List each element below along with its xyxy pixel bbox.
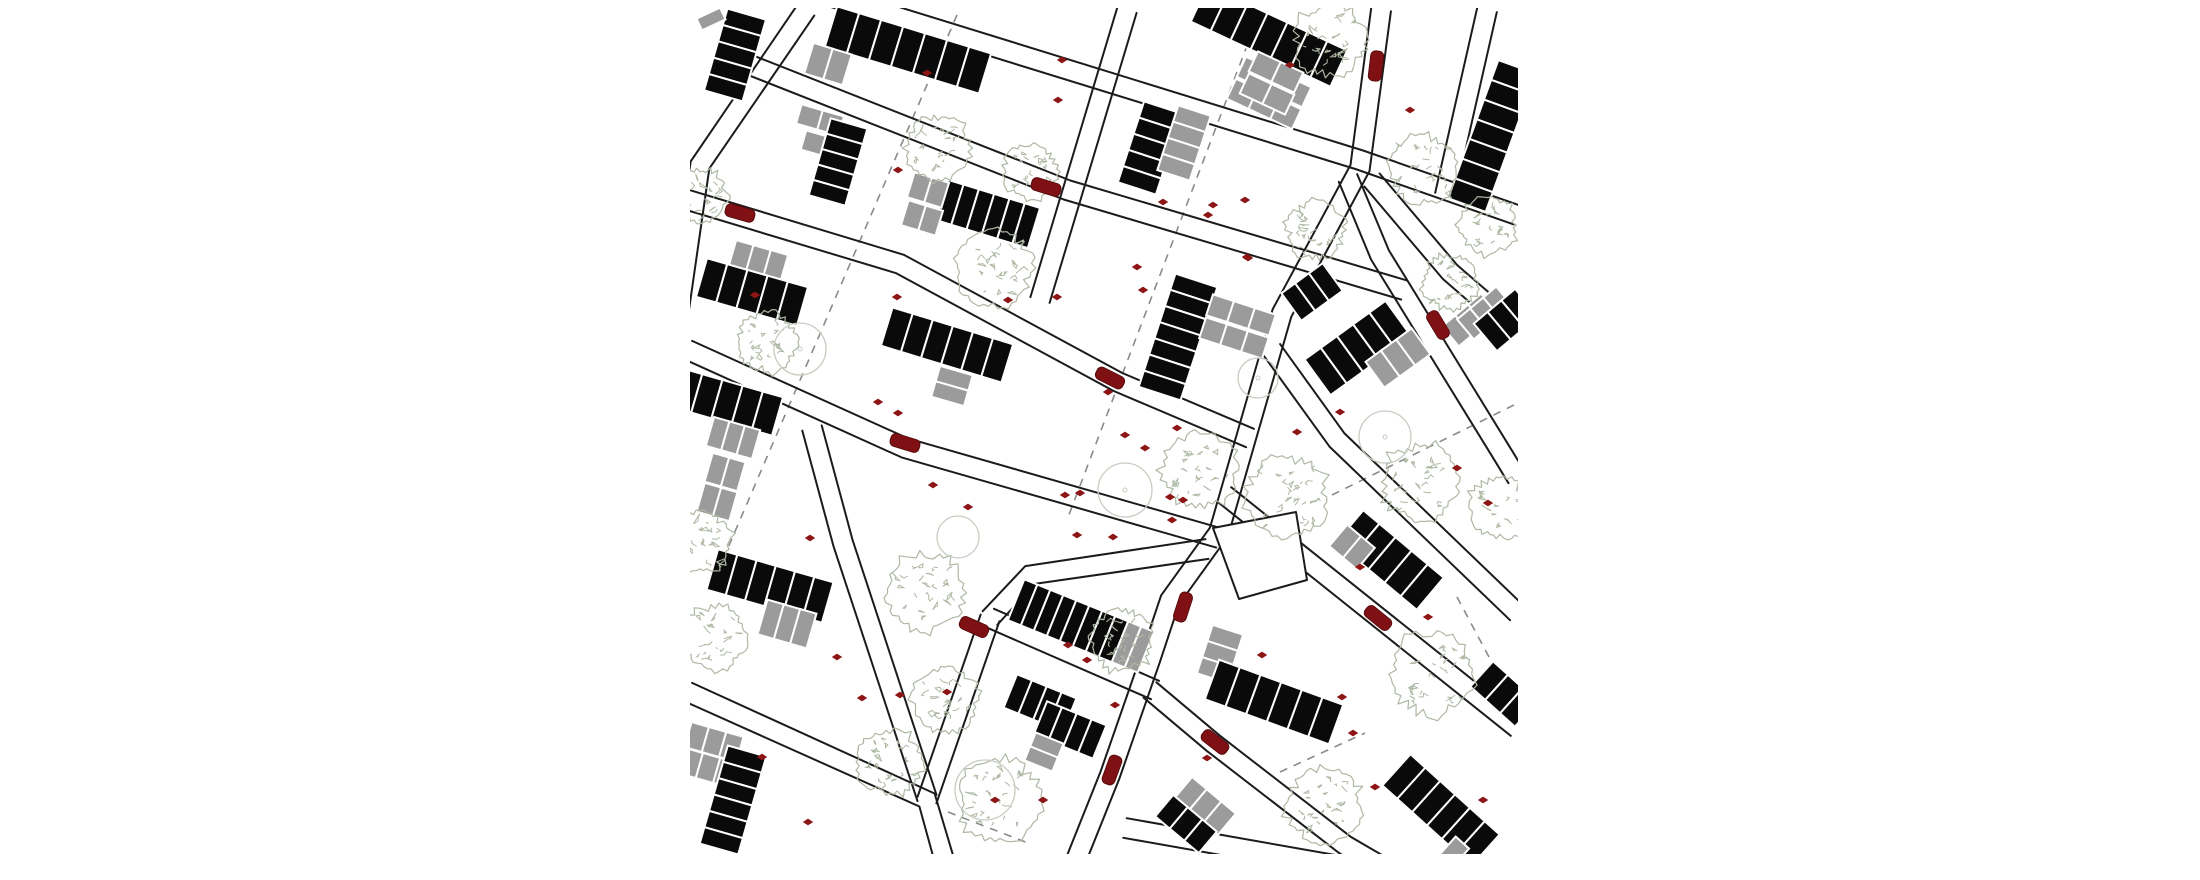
leaf-speck [1302, 516, 1306, 520]
leaf-speck [943, 701, 948, 707]
leaf-speck [987, 817, 990, 820]
tree-trunk-dot [1123, 488, 1127, 492]
leaf-speck [699, 644, 706, 646]
leaf-speck [929, 598, 933, 601]
leaf-speck [938, 155, 942, 157]
tree-circle [955, 760, 1015, 820]
leaf-speck [715, 190, 720, 194]
leaf-speck [885, 775, 892, 779]
leaf-speck [1493, 207, 1496, 214]
leaf-speck [1302, 235, 1305, 238]
pedestrian-marker [1158, 199, 1168, 206]
leaf-speck [1518, 495, 1523, 499]
leaf-speck [958, 698, 961, 702]
building-unit [696, 8, 725, 31]
leaf-speck [1177, 494, 1179, 499]
tree-outline [1468, 476, 1536, 540]
building-strip [1448, 60, 1536, 212]
leaf-speck [748, 330, 750, 332]
leaf-speck [777, 348, 783, 353]
leaf-speck [1297, 231, 1300, 236]
plan-content [666, 0, 1538, 880]
leaf-speck [923, 681, 925, 684]
leaf-speck [1415, 483, 1420, 489]
pedestrian-marker [1452, 465, 1462, 472]
tree-outline [1281, 765, 1363, 846]
leaf-speck [1421, 482, 1427, 486]
leaf-speck [1305, 481, 1312, 486]
leaf-speck [1204, 446, 1208, 449]
leaf-speck [1203, 486, 1210, 491]
leaf-speck [900, 772, 903, 777]
leaf-speck [1283, 479, 1288, 485]
leaf-speck [1318, 243, 1323, 246]
pedestrian-marker [1208, 202, 1218, 209]
leaf-speck [706, 522, 708, 523]
tree-circle-outline [955, 760, 1015, 820]
leaf-speck [1336, 14, 1344, 17]
leaf-speck [977, 264, 985, 266]
leaf-speck [712, 537, 720, 539]
car-body [1362, 604, 1393, 633]
tree-circle [1359, 411, 1411, 463]
leaf-speck [1196, 475, 1200, 480]
pedestrian-marker [1478, 797, 1488, 804]
pedestrian-marker [1405, 107, 1415, 114]
pedestrian-marker [1292, 429, 1302, 436]
building-strip [1205, 660, 1343, 745]
leaf-speck [879, 778, 883, 783]
leaf-speck [1005, 782, 1010, 786]
leaf-speck [1014, 279, 1018, 282]
leaf-speck [1448, 695, 1456, 699]
leaf-speck [1003, 793, 1008, 796]
leaf-speck [875, 764, 878, 768]
leaf-speck [1300, 211, 1304, 218]
pedestrian-marker [1060, 492, 1070, 499]
tree-canopy [1281, 765, 1363, 846]
building-strip [809, 118, 868, 205]
pedestrian-marker [1423, 614, 1433, 621]
pedestrian-marker [857, 695, 867, 702]
tree-circle [937, 516, 979, 558]
leaf-speck [986, 258, 990, 263]
tree-trunk-dot [798, 347, 802, 351]
pedestrian-marker [1132, 264, 1142, 271]
leaf-speck [696, 615, 700, 620]
leaf-speck [918, 611, 925, 613]
leaf-speck [1309, 240, 1316, 241]
leaf-speck [1400, 502, 1408, 503]
leaf-speck [1304, 520, 1309, 526]
pedestrian-marker [990, 797, 1000, 804]
leaf-speck [757, 354, 763, 360]
leaf-speck [1435, 463, 1441, 464]
pedestrian-marker [1120, 432, 1130, 439]
leaf-speck [1408, 687, 1410, 689]
tree-trunk-dot [1256, 376, 1260, 380]
leaf-speck [1481, 505, 1490, 510]
leaf-speck [1207, 468, 1212, 470]
leaf-speck [1438, 505, 1442, 507]
leaf-speck [914, 160, 917, 163]
leaf-speck [716, 647, 717, 648]
leaf-speck [1394, 489, 1398, 492]
leaf-speck [980, 811, 984, 815]
leaf-speck [997, 243, 1001, 250]
leaf-speck [1302, 502, 1306, 505]
leaf-speck [950, 127, 958, 128]
leaf-speck [1426, 176, 1434, 181]
leaf-speck [1278, 505, 1282, 508]
leaf-speck [1398, 508, 1402, 510]
leaf-speck [1321, 810, 1324, 813]
leaf-speck [977, 255, 985, 260]
leaf-speck [951, 595, 955, 601]
leaf-speck [1515, 499, 1520, 501]
leaf-speck [1447, 266, 1454, 270]
leaf-speck [1299, 810, 1304, 815]
leaf-speck [1276, 474, 1281, 476]
leaf-speck [1331, 809, 1335, 812]
leaf-speck [965, 807, 974, 809]
leaf-speck [767, 355, 770, 358]
leaf-speck [1213, 450, 1218, 455]
leaf-speck [1333, 33, 1340, 38]
leaf-speck [947, 129, 955, 132]
leaf-speck [874, 740, 876, 745]
leaf-speck [1446, 699, 1454, 703]
leaf-speck [1323, 792, 1328, 794]
leaf-speck [1504, 233, 1509, 237]
pedestrian-marker [1052, 294, 1062, 301]
pedestrian-marker [1003, 297, 1013, 304]
leaf-speck [1453, 648, 1458, 651]
building-strip [825, 6, 991, 93]
leaf-speck [1016, 822, 1018, 826]
leaf-speck [979, 271, 983, 275]
leaf-speck [992, 822, 994, 825]
leaf-speck [1312, 817, 1318, 818]
leaf-speck [1300, 224, 1309, 225]
leaf-speck [696, 174, 699, 181]
leaf-speck [1003, 816, 1005, 820]
leaf-speck [892, 573, 899, 581]
leaf-speck [933, 602, 938, 610]
leaf-speck [1043, 164, 1046, 169]
leaf-speck [1304, 217, 1307, 221]
leaf-speck [953, 137, 955, 141]
leaf-speck [1181, 468, 1187, 471]
leaf-speck [735, 633, 742, 634]
leaf-speck [926, 573, 934, 575]
leaf-speck [1447, 274, 1452, 279]
building-strip [1470, 661, 1537, 726]
pedestrian-marker [1108, 534, 1118, 541]
building-strip [936, 180, 1040, 248]
pedestrian-marker [1172, 425, 1182, 432]
leaf-speck [1014, 155, 1017, 158]
leaf-speck [1337, 803, 1341, 806]
car [724, 203, 756, 224]
leaf-speck [1517, 518, 1528, 521]
leaf-speck [934, 567, 938, 568]
leaf-speck [912, 566, 917, 569]
leaf-speck [1414, 145, 1417, 150]
tree-canopy [959, 754, 1044, 842]
leaf-speck [1188, 491, 1189, 494]
tree-circle-outline [937, 516, 979, 558]
leaf-speck [1306, 797, 1310, 798]
leaf-speck [1016, 267, 1028, 274]
leaf-speck [922, 583, 930, 588]
leaf-speck [1519, 497, 1523, 506]
leaf-speck [898, 585, 904, 588]
leaf-speck [1302, 816, 1304, 819]
leaf-speck [679, 552, 684, 558]
leaf-speck [973, 802, 976, 803]
leaf-speck [1008, 291, 1017, 294]
leaf-speck [943, 160, 945, 162]
leaf-speck [1412, 701, 1415, 704]
leaf-speck [709, 207, 715, 211]
leaf-speck [691, 182, 695, 189]
leaf-speck [751, 346, 753, 350]
leaf-speck [720, 652, 732, 655]
leaf-speck [1475, 239, 1479, 241]
leaf-speck [689, 550, 693, 554]
building-strip [1008, 579, 1154, 672]
tree-outline [908, 666, 982, 734]
leaf-speck [1298, 246, 1302, 247]
tree-outline [1381, 441, 1461, 523]
tree-trunk-dot [1383, 435, 1387, 439]
building-strip [1382, 754, 1499, 866]
leaf-speck [1424, 492, 1432, 493]
street-island [1213, 512, 1307, 599]
leaf-speck [898, 748, 902, 749]
leaf-speck [986, 772, 989, 774]
tree-circle [774, 323, 826, 375]
leaf-speck [679, 537, 681, 540]
pedestrian-marker [1082, 657, 1092, 664]
leaf-speck [1474, 218, 1480, 223]
leaf-speck [1420, 691, 1422, 695]
leaf-speck [688, 547, 691, 551]
leaf-speck [1198, 451, 1203, 454]
leaf-speck [947, 567, 953, 571]
site-plan-svg [0, 0, 2200, 880]
leaf-speck [974, 775, 977, 779]
pedestrian-marker [1370, 784, 1380, 791]
car-body [724, 203, 756, 224]
leaf-speck [1491, 241, 1495, 244]
leaf-speck [692, 540, 697, 546]
leaf-speck [700, 612, 705, 615]
leaf-speck [1184, 451, 1188, 455]
leaf-speck [1440, 467, 1444, 471]
leaf-speck [709, 188, 711, 191]
leaf-speck [953, 708, 960, 711]
leaf-speck [1315, 498, 1321, 502]
leaf-speck [1437, 298, 1441, 300]
leaf-speck [1430, 458, 1433, 464]
leaf-speck [1317, 821, 1320, 824]
leaf-speck [713, 182, 717, 186]
car [1172, 591, 1194, 624]
leaf-speck [1025, 157, 1029, 160]
leaf-speck [1034, 155, 1040, 157]
leaf-speck [921, 616, 926, 620]
leaf-speck [1440, 667, 1447, 671]
leaf-speck [983, 777, 987, 781]
leaf-speck [750, 341, 753, 343]
leaf-speck [1425, 470, 1429, 473]
leaf-speck [1004, 272, 1006, 275]
leaf-speck [943, 600, 951, 605]
leaf-speck [903, 605, 907, 608]
leaf-speck [881, 738, 886, 740]
leaf-speck [1025, 175, 1027, 179]
leaf-speck [709, 543, 714, 545]
pedestrian-marker [1202, 755, 1212, 762]
tree-canopy [908, 666, 982, 734]
leaf-speck [1285, 497, 1292, 501]
leaf-speck [751, 356, 754, 360]
leaf-speck [1426, 166, 1431, 169]
leaf-speck [884, 743, 888, 748]
leaf-speck [1430, 147, 1432, 154]
leaf-speck [1437, 502, 1442, 505]
leaf-speck [1499, 225, 1503, 229]
tree-outline [884, 551, 967, 636]
leaf-speck [1445, 184, 1447, 188]
pedestrian-marker [1072, 532, 1082, 539]
leaf-speck [918, 564, 923, 568]
leaf-speck [944, 132, 949, 134]
leaf-speck [986, 791, 990, 797]
leaf-speck [1519, 512, 1525, 516]
leaf-speck [723, 630, 726, 633]
leaf-speck [720, 649, 724, 652]
leaf-speck [900, 575, 908, 578]
tree-circle [1098, 463, 1152, 517]
site-plan-canvas [0, 0, 2200, 880]
leaf-speck [1465, 285, 1472, 289]
leaf-speck [915, 129, 922, 138]
leaf-speck [1334, 17, 1341, 22]
street-edge-vertical-street-center [1030, 7, 1117, 297]
tree-circle-outline [774, 323, 826, 375]
pedestrian-marker [1335, 409, 1345, 416]
leaf-speck [682, 183, 684, 189]
leaf-speck [697, 654, 700, 657]
leaf-speck [945, 137, 950, 139]
leaf-speck [1298, 228, 1307, 232]
tree-canopy [1468, 476, 1536, 540]
leaf-speck [911, 773, 918, 776]
leaf-speck [926, 593, 929, 601]
pedestrian-marker [1167, 517, 1177, 524]
leaf-speck [1336, 808, 1342, 811]
leaf-speck [1317, 785, 1322, 788]
leaf-speck [1416, 165, 1420, 168]
leaf-speck [1312, 517, 1315, 526]
tree-circle-outline [1359, 411, 1411, 463]
leaf-speck [1424, 475, 1434, 479]
leaf-speck [898, 741, 900, 744]
pedestrian-marker [893, 410, 903, 417]
leaf-speck [866, 766, 871, 768]
car [1094, 365, 1127, 390]
leaf-speck [1289, 472, 1293, 475]
pedestrian-marker [1038, 797, 1048, 804]
leaf-speck [1494, 505, 1499, 506]
pedestrian-marker [873, 399, 883, 406]
leaf-speck [1352, 20, 1355, 22]
leaf-speck [711, 613, 716, 621]
leaf-speck [932, 568, 934, 571]
tree-canopy [953, 227, 1036, 309]
leaf-speck [701, 658, 712, 660]
leaf-speck [932, 127, 938, 128]
leaf-speck [774, 330, 778, 333]
leaf-speck [1393, 472, 1397, 481]
leaf-speck [1474, 213, 1483, 219]
leaf-speck [997, 766, 1003, 772]
leaf-speck [1506, 497, 1510, 501]
leaf-speck [1445, 671, 1447, 672]
leaf-speck [875, 755, 882, 762]
tree-canopy [884, 551, 967, 636]
leaf-speck [681, 201, 682, 202]
pedestrian-marker [1053, 97, 1063, 104]
pedestrian-marker [1337, 694, 1347, 701]
pedestrian-marker [1110, 702, 1120, 709]
leaf-speck [1188, 451, 1193, 457]
street-edge-vertical-street-center [1050, 13, 1137, 303]
pedestrian-marker [928, 482, 938, 489]
car [889, 432, 921, 453]
leaf-speck [706, 560, 711, 566]
leaf-speck [914, 593, 916, 598]
leaf-speck [1308, 813, 1313, 816]
leaf-speck [919, 144, 924, 149]
pedestrian-marker [1257, 652, 1267, 659]
leaf-speck [1342, 781, 1348, 784]
leaf-speck [932, 584, 937, 589]
pedestrian-marker [1240, 197, 1250, 204]
parcel-boundary-dashed-line [1067, 30, 1253, 520]
leaf-speck [1516, 490, 1519, 492]
leaf-speck [1343, 41, 1348, 47]
tree-outline [681, 603, 748, 674]
leaf-speck [694, 514, 700, 524]
leaf-speck [1288, 487, 1292, 495]
leaf-speck [996, 276, 1002, 280]
leaf-speck [731, 617, 735, 621]
leaf-speck [1277, 507, 1283, 512]
pedestrian-marker [1203, 212, 1213, 219]
leaf-speck [976, 249, 980, 250]
leaf-speck [990, 264, 994, 267]
building-strip [696, 8, 725, 31]
pedestrian-marker [1483, 500, 1493, 507]
leaf-speck [1029, 170, 1032, 176]
pedestrian-marker [893, 167, 903, 174]
trees-layer [666, 1, 1536, 846]
leaf-speck [1183, 459, 1187, 462]
